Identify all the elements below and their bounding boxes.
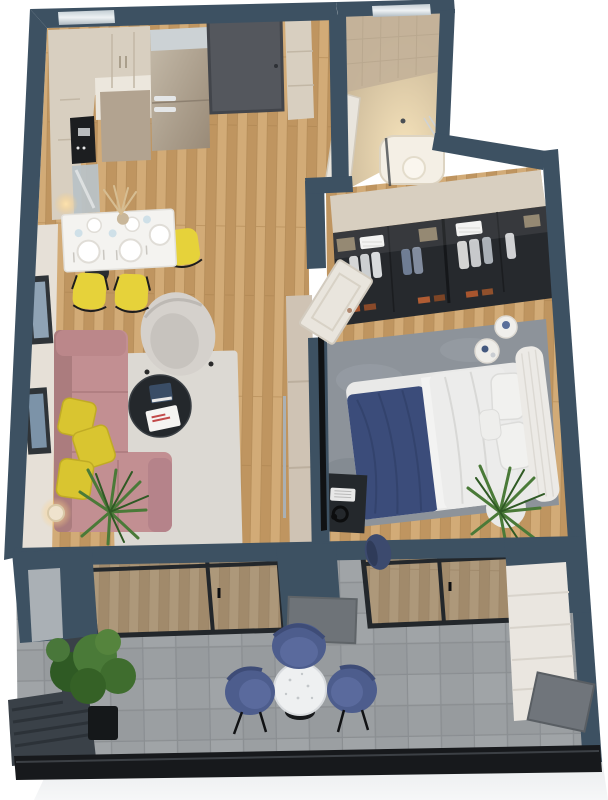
dining-table bbox=[62, 209, 177, 272]
tub-basin bbox=[403, 157, 425, 179]
plate bbox=[119, 239, 142, 262]
under-cabinet-glow bbox=[54, 192, 78, 216]
floorplan-svg bbox=[0, 0, 608, 800]
fridge bbox=[150, 27, 210, 151]
bedroom bbox=[312, 170, 560, 544]
yellow-chair bbox=[72, 272, 107, 310]
plant-pot bbox=[88, 706, 118, 740]
fridge-handle bbox=[154, 96, 176, 101]
window-slot-top bbox=[58, 10, 115, 25]
floorplan-render bbox=[0, 0, 608, 800]
pillow-yellow bbox=[56, 458, 95, 500]
plate bbox=[149, 224, 170, 245]
sofa-armrest bbox=[56, 330, 126, 356]
lower-cabinet-front bbox=[100, 90, 151, 162]
chair-leg bbox=[145, 370, 150, 375]
window-slot-bathroom bbox=[372, 4, 431, 17]
small-pillow bbox=[478, 409, 502, 441]
door-hinge bbox=[274, 64, 278, 68]
bedside-deco bbox=[502, 321, 510, 329]
carafe bbox=[491, 353, 496, 358]
fridge-handle bbox=[154, 107, 176, 112]
blue-chair bbox=[272, 623, 326, 669]
plate bbox=[77, 240, 100, 263]
coffee-table bbox=[129, 375, 191, 437]
yellow-chair bbox=[114, 273, 148, 310]
oven-panel bbox=[78, 128, 90, 136]
shower-fixture bbox=[401, 119, 406, 124]
knob bbox=[77, 147, 80, 150]
knob bbox=[83, 147, 86, 150]
tv-edge bbox=[283, 396, 286, 518]
chaise-end bbox=[148, 458, 172, 532]
chair-leg bbox=[209, 362, 214, 367]
entry-closet bbox=[285, 19, 314, 120]
stub-left-face bbox=[28, 568, 63, 642]
floor-lamp bbox=[48, 505, 64, 521]
entry-door bbox=[208, 18, 283, 113]
balcony-round-table bbox=[274, 663, 326, 715]
cooktop-oven bbox=[70, 116, 96, 164]
fridge-top bbox=[150, 27, 209, 51]
plate bbox=[87, 218, 102, 233]
cup bbox=[482, 346, 489, 353]
wall-corridor-end bbox=[305, 176, 353, 194]
wall-bathroom-left bbox=[329, 14, 349, 192]
